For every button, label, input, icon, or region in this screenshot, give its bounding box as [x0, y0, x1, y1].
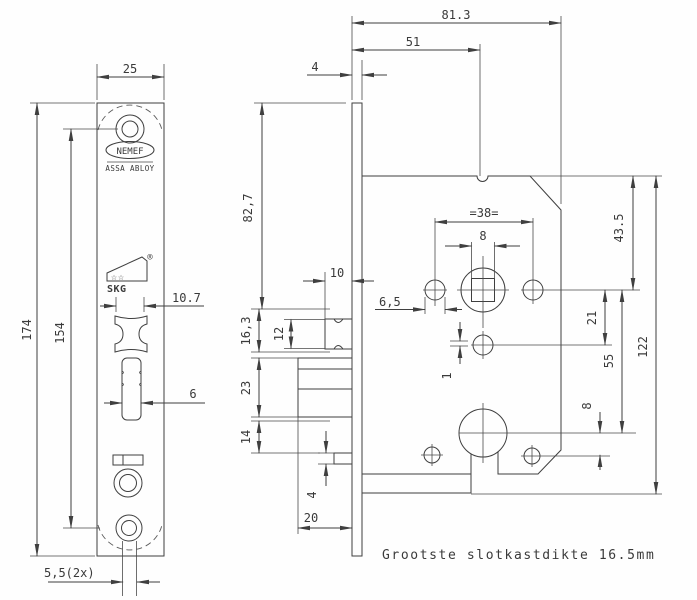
front-view-dimensions: 25 174 154 10.7 6 5,5(2x) — [20, 62, 205, 596]
dim-faceplate-thickness: 4 — [311, 60, 318, 74]
spindle-centerlines — [457, 256, 509, 328]
dim-micro-offset: 1 — [440, 372, 454, 379]
hole-centerlines — [421, 444, 443, 466]
drawing-note: Grootste slotkastdikte 16.5mm — [382, 548, 655, 563]
dim-deadbolt-slot-width: 6 — [189, 387, 196, 401]
rounded-end-bottom-dashed-arc — [98, 525, 162, 550]
dim-latch-cutout-height: 16,3 — [239, 317, 253, 346]
bottom-screw-hole-outer — [116, 515, 142, 541]
dim-keyhole-to-screw: 8 — [580, 402, 594, 409]
side-view-lock-body — [298, 103, 640, 556]
cylinder-hole-outer — [114, 469, 142, 497]
deadbolt-slot — [122, 358, 141, 420]
aux-bolt-slot — [113, 455, 143, 465]
registered-mark: ® — [147, 253, 153, 263]
lock-technical-drawing: NEMEF ASSA ABLOY ☆☆ ® SKG 25 174 154 — [0, 0, 697, 600]
brand-name-text: NEMEF — [116, 147, 143, 157]
cylinder-hole-inner — [120, 475, 137, 492]
dim-top-to-latch: 82,7 — [241, 194, 255, 223]
dim-latch-throw: 10 — [330, 266, 344, 280]
keyhole-centerlines — [459, 403, 636, 463]
skg-text: SKG — [107, 284, 127, 295]
dim-spindle-square: 8 — [479, 229, 486, 243]
technical-drawing-page: NEMEF ASSA ABLOY ☆☆ ® SKG 25 174 154 — [0, 0, 697, 600]
dim-latch-height: 12 — [272, 327, 286, 341]
extension-line — [123, 541, 137, 596]
dim-screw-hole-dia: 5,5(2x) — [44, 566, 95, 580]
skg-certification-logo: ☆☆ ® SKG — [107, 253, 153, 295]
dim-deadbolt-height: 23 — [239, 381, 253, 395]
dim-case-height: 122 — [636, 336, 650, 358]
deadbolt-side — [298, 358, 352, 417]
dim-plate-width: 25 — [123, 62, 137, 76]
dim-aux-pin-height: 4 — [305, 491, 319, 498]
dim-plate-height: 174 — [20, 319, 34, 341]
latch-cutout — [115, 316, 147, 352]
faceplate-side-outline — [352, 103, 362, 556]
dim-handle-hole-spacing: =38= — [470, 206, 499, 220]
dim-hole-spacing: 154 — [53, 322, 67, 344]
top-screw-hole-inner — [122, 121, 138, 137]
latch-bolt-side — [325, 319, 352, 349]
front-view-faceplate: NEMEF ASSA ABLOY ☆☆ ® SKG — [97, 103, 164, 556]
top-screw-hole-outer — [116, 115, 144, 143]
dim-total-depth: 81.3 — [442, 8, 471, 22]
rounded-end-top-dashed-arc — [98, 105, 162, 130]
extension-line — [116, 297, 144, 312]
dim-handle-hole-dia: 6,5 — [379, 295, 401, 309]
bottom-screw-hole-inner — [122, 521, 137, 536]
side-view-dimensions: 4 81.3 51 82,7 16,3 12 10 23 14 4 20 — [239, 8, 662, 534]
latch-bolt-notches — [334, 319, 343, 349]
aux-pin-side — [334, 453, 352, 464]
deadbolt-lamination-lines — [298, 369, 352, 389]
case-outline-left-bottom — [362, 454, 471, 493]
dim-spindle-to-cylinder: 21 — [585, 311, 599, 325]
deadbolt-slot-nicks — [122, 371, 141, 386]
hole-centerlines — [423, 218, 447, 306]
extension-tick — [318, 341, 468, 464]
hole-centerlines — [471, 331, 612, 359]
skg-stars: ☆☆ — [111, 272, 125, 283]
case-outline-right — [362, 176, 561, 474]
dim-latch-cutout-width: 10.7 — [172, 291, 201, 305]
brand-group-text: ASSA ABLOY — [105, 164, 154, 173]
dim-deadbolt-throw: 20 — [304, 511, 318, 525]
dim-below-deadbolt: 14 — [239, 430, 253, 444]
dim-backset: 51 — [406, 35, 420, 49]
dim-spindle-to-keyhole: 55 — [602, 354, 616, 368]
dim-top-to-spindle: 43.5 — [612, 214, 626, 243]
